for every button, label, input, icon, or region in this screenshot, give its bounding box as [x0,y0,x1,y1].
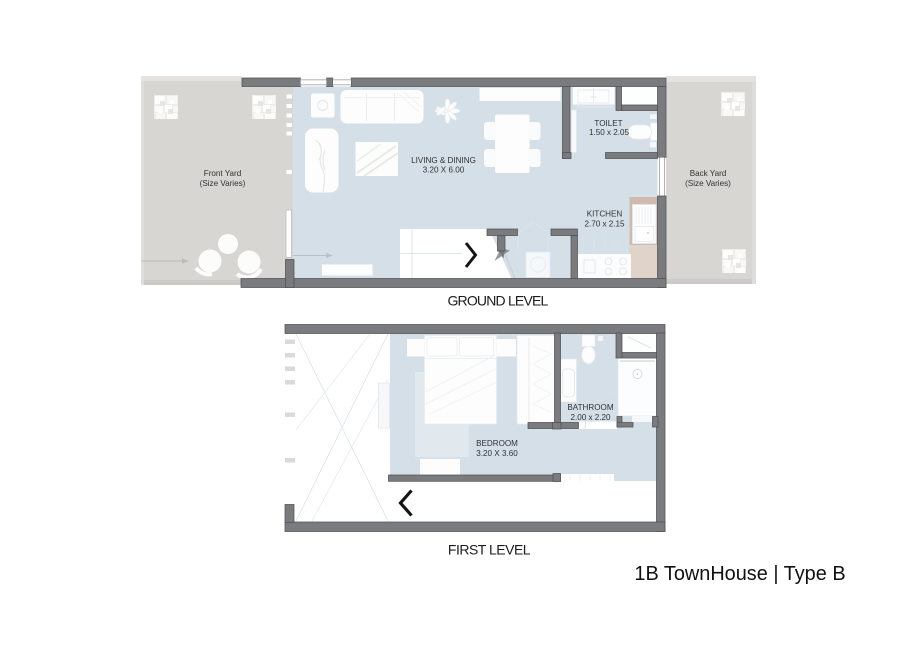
svg-text:GROUND LEVEL: GROUND LEVEL [447,293,548,309]
svg-text:(Size Varies): (Size Varies) [200,179,246,188]
svg-text:Back Yard: Back Yard [690,169,727,178]
svg-text:Front Yard: Front Yard [204,169,242,178]
svg-text:2.00 x 2.20: 2.00 x 2.20 [570,413,611,422]
svg-text:(Size Varies): (Size Varies) [685,179,731,188]
svg-text:2.70 x 2.15: 2.70 x 2.15 [584,220,625,229]
svg-text:3.20 X 6.00: 3.20 X 6.00 [423,166,465,175]
svg-text:KITCHEN: KITCHEN [587,210,623,219]
svg-text:3.20 X 3.60: 3.20 X 3.60 [476,449,518,458]
svg-text:1.50 x 2.05: 1.50 x 2.05 [589,128,630,137]
svg-text:TOILET: TOILET [594,119,622,128]
svg-text:LIVING & DINING: LIVING & DINING [411,156,476,165]
svg-text:BEDROOM: BEDROOM [476,439,518,448]
svg-text:BATHROOM: BATHROOM [567,403,613,412]
svg-text:1B TownHouse | Type B: 1B TownHouse | Type B [634,563,845,585]
svg-text:FIRST LEVEL: FIRST LEVEL [448,542,531,558]
